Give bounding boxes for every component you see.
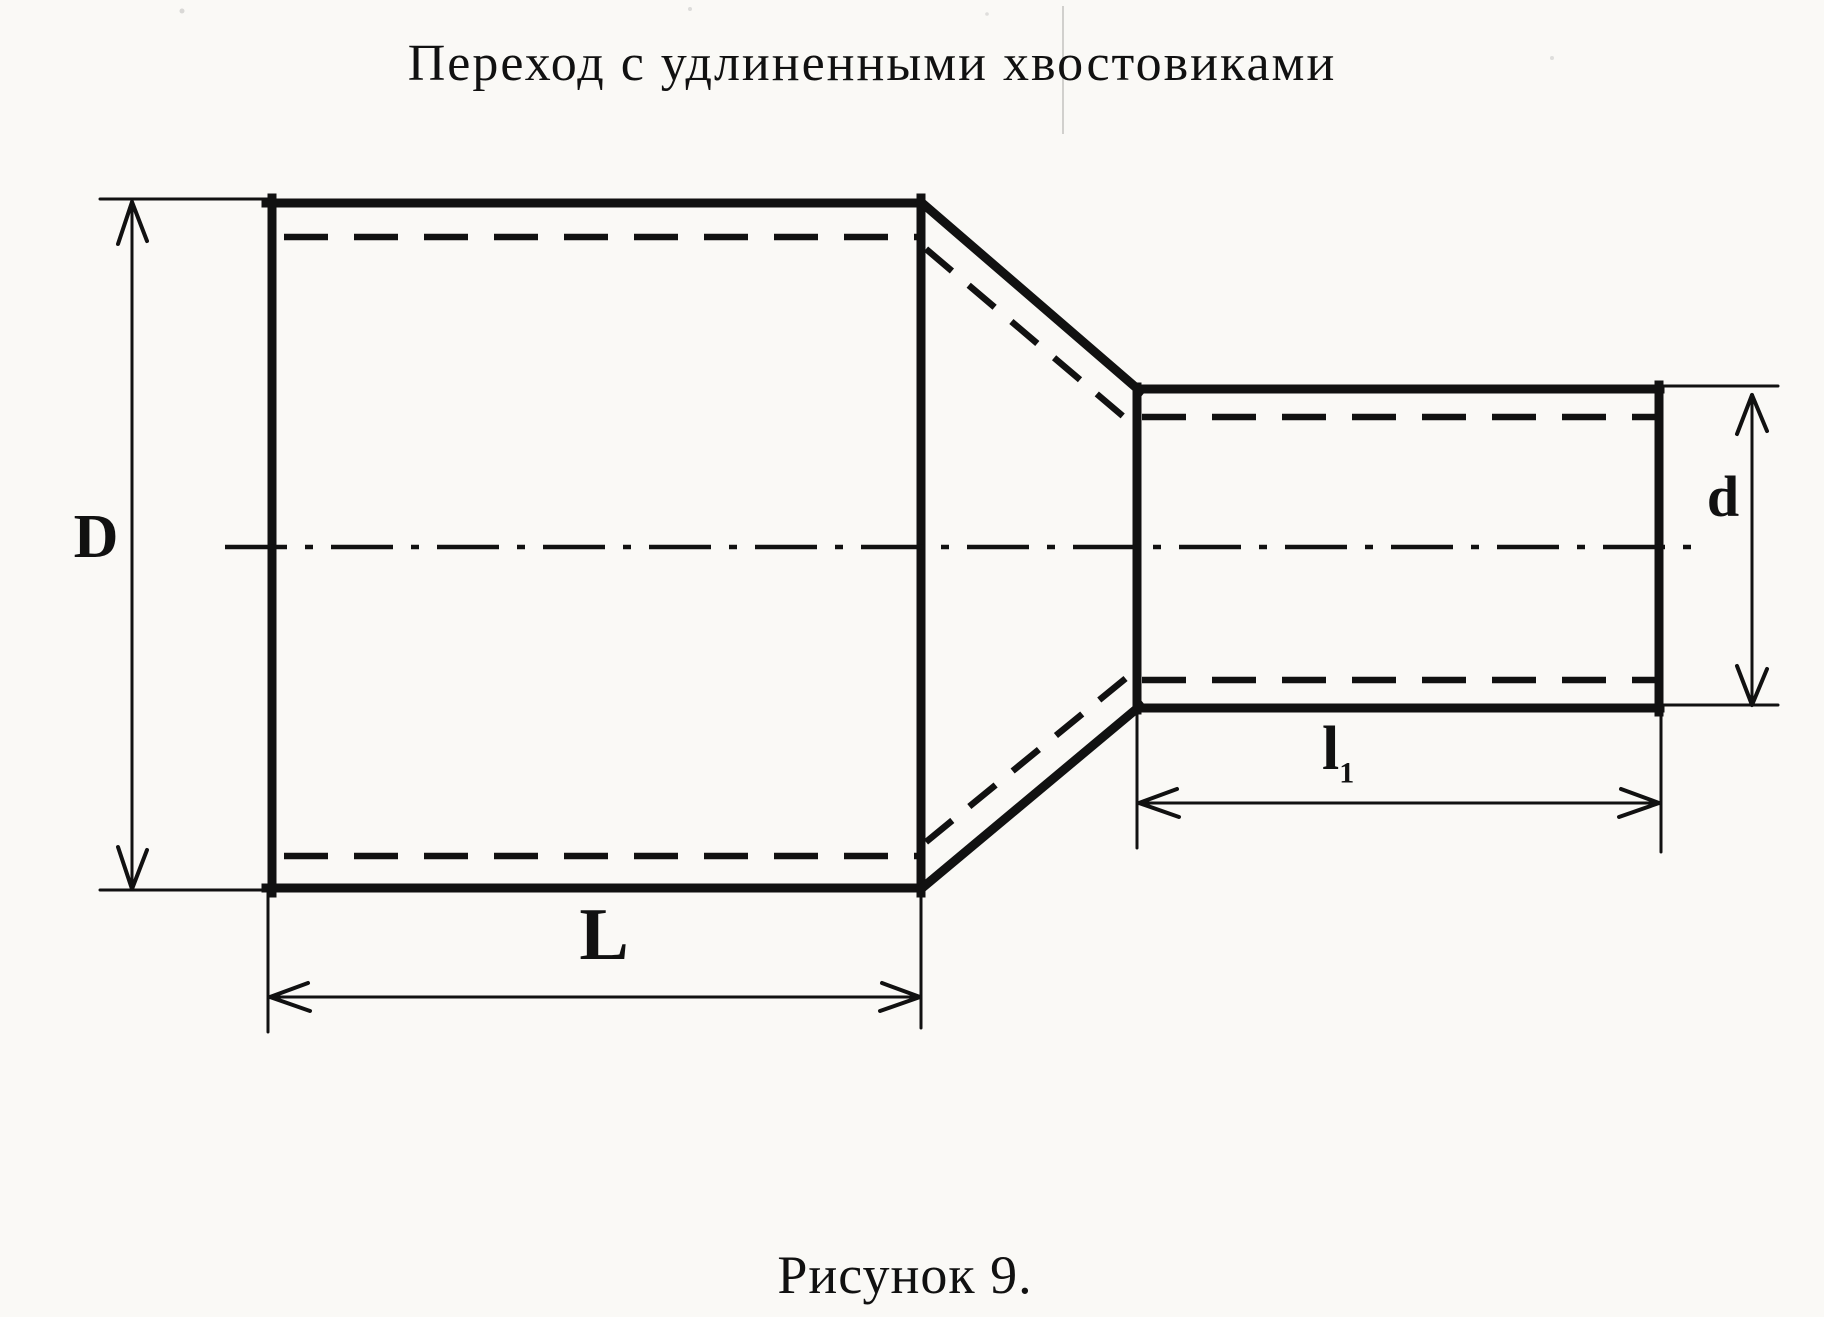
dimension-label-l1: l1 xyxy=(1322,718,1354,780)
cone-bottom-slant xyxy=(921,706,1140,889)
dimension-label-L: L xyxy=(558,898,650,972)
cone-inner-bottom xyxy=(926,674,1131,842)
dimension-label-l1-base: l xyxy=(1322,715,1339,783)
dimension-label-D: D xyxy=(58,506,134,568)
dimension-label-l1-subscript: 1 xyxy=(1339,756,1354,789)
dimension-label-d: d xyxy=(1690,468,1756,526)
cone-top-slant xyxy=(921,202,1140,391)
scan-artifacts xyxy=(180,6,1555,134)
figure-caption: Рисунок 9. xyxy=(700,1248,1110,1302)
cone-inner-top xyxy=(926,249,1131,423)
scanned-technical-drawing-page: Переход с удлиненными хвостовиками xyxy=(0,0,1824,1317)
pipe-reducer-drawing xyxy=(0,0,1824,1317)
dimension-lines xyxy=(100,199,1778,1032)
